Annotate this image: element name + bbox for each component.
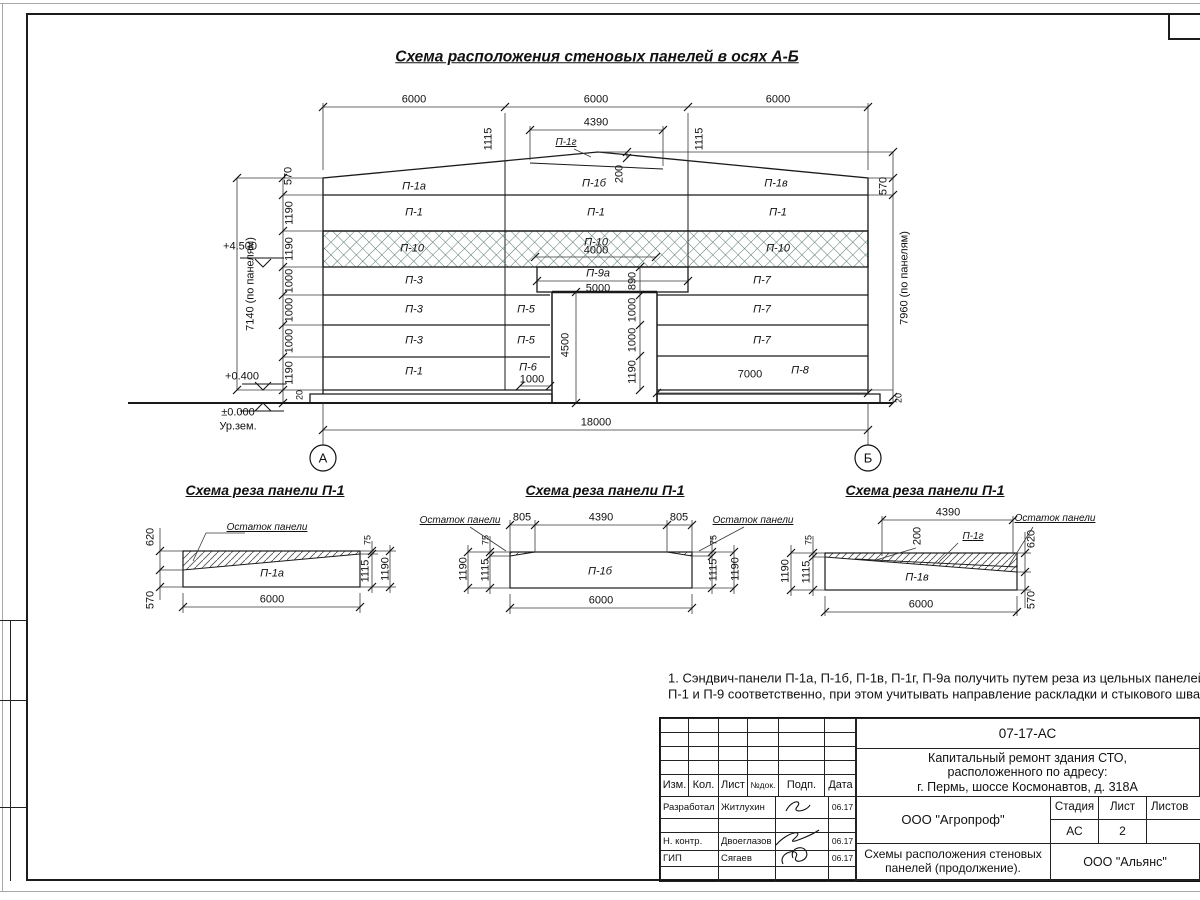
changelog-cell <box>825 761 857 775</box>
dim-label: 1190 <box>285 201 296 225</box>
org-cell: ООО "Агропроф" <box>855 796 1051 844</box>
empty-cell <box>776 867 829 882</box>
changelog-cell <box>661 747 689 761</box>
dim-label: 1115 <box>695 128 706 151</box>
empty-cell <box>829 867 857 882</box>
changelog-cell <box>661 719 689 733</box>
panel-label: П-7 <box>753 305 771 316</box>
doc-title-cell: Схемы расположения стеновых панелей (про… <box>855 843 1051 881</box>
dim-label: 6000 <box>402 95 426 106</box>
panel-label: П-7 <box>753 336 771 347</box>
elevation-dim-ticks <box>233 103 897 434</box>
ridge-cut-line <box>530 163 663 169</box>
main-title: Схема расположения стеновых панелей в ос… <box>395 49 799 65</box>
role-cell: Н. контр. <box>661 833 719 851</box>
dim-label: 4390 <box>584 118 608 129</box>
level-mark-label: +0.400 <box>225 372 259 383</box>
panel-label-p1g: П-1г <box>962 532 983 542</box>
panel-band-p9a <box>537 267 688 292</box>
dim-label: 200 <box>615 165 626 183</box>
dim-label: 805 <box>670 513 688 524</box>
panel-label: П-10 <box>766 244 790 255</box>
changelog-cell <box>825 719 857 733</box>
dim-label: 1190 <box>781 559 792 583</box>
remnant-label: Остаток панели <box>420 516 501 526</box>
doc-title-line: Схемы расположения стеновых <box>864 848 1042 862</box>
dim-label: 6000 <box>584 95 608 106</box>
panel-label: П-1 <box>587 208 605 219</box>
dim-label: 570 <box>879 177 890 195</box>
note-line-1: 1. Сэндвич-панели П-1а, П-1б, П-1в, П-1г… <box>668 672 1200 685</box>
panel-label: П-10 <box>400 244 424 255</box>
signature-cell <box>776 833 829 851</box>
dim-label: 6000 <box>589 596 613 607</box>
dim-label: 620 <box>1027 530 1038 548</box>
dim-label: 1190 <box>731 557 742 581</box>
panel-label: П-3 <box>405 336 423 347</box>
dim-label: 570 <box>1027 591 1038 609</box>
detail2-title: Схема реза панели П-1 <box>526 483 685 497</box>
name-cell: Сягаев <box>719 851 776 867</box>
detail1-title: Схема реза панели П-1 <box>186 483 345 497</box>
panel-label: П-8 <box>791 366 809 377</box>
changelog-cell <box>689 747 719 761</box>
dim-label: 20 <box>895 393 904 403</box>
panel-label: П-1а <box>402 182 426 193</box>
plinth <box>310 394 880 403</box>
dim-label: 1190 <box>285 237 296 261</box>
dim-label: 1190 <box>459 557 470 581</box>
changelog-cell <box>779 761 825 775</box>
dim-label: 5000 <box>586 284 610 295</box>
changelog-cell <box>689 733 719 747</box>
dim-label: 1000 <box>285 298 296 322</box>
panel-label: П-1 <box>405 208 423 219</box>
drawing-sheet: { "sheet": { "main_title": "Схема распол… <box>0 0 1200 900</box>
panel-label: П-5 <box>517 305 535 316</box>
project-line: расположенного по адресу: <box>948 765 1108 779</box>
panel-label: П-1в <box>764 179 788 190</box>
dim-label: 18000 <box>581 418 612 429</box>
changelog-cell <box>661 761 689 775</box>
dim-label: 75 <box>710 535 719 545</box>
changelog-cell <box>779 719 825 733</box>
date-cell: 06.17 <box>829 833 857 851</box>
col-header-ndok: №док. <box>748 775 779 797</box>
changelog-cell <box>748 719 779 733</box>
dim-label: 6000 <box>260 595 284 606</box>
stage-header-cell: Стадия <box>1050 796 1099 820</box>
dim-label: 75 <box>482 535 491 545</box>
dim-label: 7960 (по панелям) <box>900 231 911 325</box>
col-header-data: Дата <box>825 775 857 797</box>
sheet-value-cell: 2 <box>1098 819 1147 844</box>
changelog-cell <box>825 733 857 747</box>
panel-label: П-3 <box>405 305 423 316</box>
dim-label: 200 <box>913 527 924 545</box>
panel-label: П-5 <box>517 336 535 347</box>
dim-label: 75 <box>364 535 373 545</box>
panel-label: П-1 <box>405 367 423 378</box>
changelog-cell <box>719 761 748 775</box>
dim-label: 4390 <box>936 508 960 519</box>
remnant-label: Остаток панели <box>1015 514 1096 524</box>
empty-cell <box>719 819 776 833</box>
dim-label: 1115 <box>484 128 495 151</box>
dim-label: 1190 <box>285 361 296 385</box>
role-cell: ГИП <box>661 851 719 867</box>
changelog-cell <box>779 733 825 747</box>
empty-cell <box>661 867 719 882</box>
dim-label: 4000 <box>584 246 608 257</box>
col-header-podp: Подп. <box>779 775 825 797</box>
changelog-cell <box>779 747 825 761</box>
doc-title-line: панелей (продолжение). <box>885 862 1021 876</box>
panel-label-p1g: П-1г <box>555 138 576 148</box>
dim-label: 7000 <box>738 370 762 381</box>
detail3-title: Схема реза панели П-1 <box>846 483 1005 497</box>
changelog-cell <box>689 761 719 775</box>
org2-cell: ООО "Альянс" <box>1050 843 1200 881</box>
sheets-header-cell: Листов <box>1146 796 1200 820</box>
dim-label: 1000 <box>628 328 639 352</box>
project-line: г. Пермь, шоссе Космонавтов, д. 318А <box>917 780 1138 794</box>
remnant-label: Остаток панели <box>227 523 308 533</box>
dim-label: 20 <box>296 390 305 400</box>
titleblock-changelog-grid: Изм. Кол. Лист №док. Подп. Дата <box>660 718 856 796</box>
changelog-cell <box>689 719 719 733</box>
dim-label: 570 <box>284 167 295 185</box>
empty-cell <box>776 819 829 833</box>
dim-label: 1000 <box>520 375 544 386</box>
dim-label: 6000 <box>909 600 933 611</box>
changelog-cell <box>748 761 779 775</box>
dim-label: 805 <box>513 513 531 524</box>
changelog-cell <box>719 747 748 761</box>
changelog-cell <box>661 733 689 747</box>
panel-label: П-1 <box>769 208 787 219</box>
changelog-cell <box>719 719 748 733</box>
stage-value-cell: АС <box>1050 819 1099 844</box>
dim-label: 75 <box>805 535 814 545</box>
col-header-kol: Кол. <box>689 775 719 797</box>
changelog-cell <box>719 733 748 747</box>
signature-cell <box>776 797 829 819</box>
date-cell: 06.17 <box>829 851 857 867</box>
panel-label: П-1а <box>260 569 284 580</box>
axis-label-a: А <box>319 452 328 465</box>
changelog-cell <box>748 733 779 747</box>
dim-label: 1000 <box>628 298 639 322</box>
remnant-label: Остаток панели <box>713 516 794 526</box>
dim-label: 1000 <box>285 269 296 293</box>
dim-label: 4500 <box>561 333 572 357</box>
sheets-value-cell <box>1146 819 1200 844</box>
dim-label: 570 <box>146 591 157 609</box>
name-cell: Двоеглазов <box>719 833 776 851</box>
empty-cell <box>719 867 776 882</box>
doc-number-cell: 07-17-АС <box>855 718 1200 749</box>
panel-label: П-1б <box>582 179 606 190</box>
dim-label: 1190 <box>628 360 639 384</box>
dim-label: 4390 <box>589 513 613 524</box>
dim-label: 1115 <box>802 561 813 584</box>
panel-label: П-3 <box>405 276 423 287</box>
titleblock-personnel-grid: Разработал Житлухин 06.17 Н. контр. Двое… <box>660 796 856 881</box>
col-header-izm: Изм. <box>661 775 689 797</box>
project-name-cell: Капитальный ремонт здания СТО, расположе… <box>855 748 1200 797</box>
panel-label: П-7 <box>753 276 771 287</box>
date-cell: 06.17 <box>829 797 857 819</box>
dim-label: 890 <box>628 272 639 290</box>
panel-label: П-1в <box>905 573 929 584</box>
dim-label: 1115 <box>361 560 372 583</box>
panel-label: П-1б <box>588 567 612 578</box>
col-header-list: Лист <box>719 775 748 797</box>
role-cell: Разработал <box>661 797 719 819</box>
dim-label: 620 <box>146 528 157 546</box>
dim-label: 1115 <box>709 559 720 582</box>
note-line-2: П-1 и П-9 соответственно, при этом учиты… <box>668 688 1200 701</box>
dim-label: 1000 <box>285 329 296 353</box>
panel-label: П-6 <box>519 363 537 374</box>
dim-label: 1190 <box>381 557 392 581</box>
signature-cell <box>776 851 829 867</box>
project-line: Капитальный ремонт здания СТО, <box>928 751 1127 765</box>
level-mark-label: ±0.000 <box>221 408 255 419</box>
changelog-cell <box>825 747 857 761</box>
axis-label-b: Б <box>864 452 873 465</box>
dim-label: 1115 <box>481 559 492 582</box>
sheet-header-cell: Лист <box>1098 796 1147 820</box>
ground-level-label: Ур.зем. <box>219 422 256 433</box>
empty-cell <box>829 819 857 833</box>
empty-cell <box>661 819 719 833</box>
changelog-cell <box>748 747 779 761</box>
panel-label: П-9а <box>586 269 610 280</box>
name-cell: Житлухин <box>719 797 776 819</box>
level-mark-label: +4.500 <box>223 242 257 253</box>
dim-label: 6000 <box>766 95 790 106</box>
